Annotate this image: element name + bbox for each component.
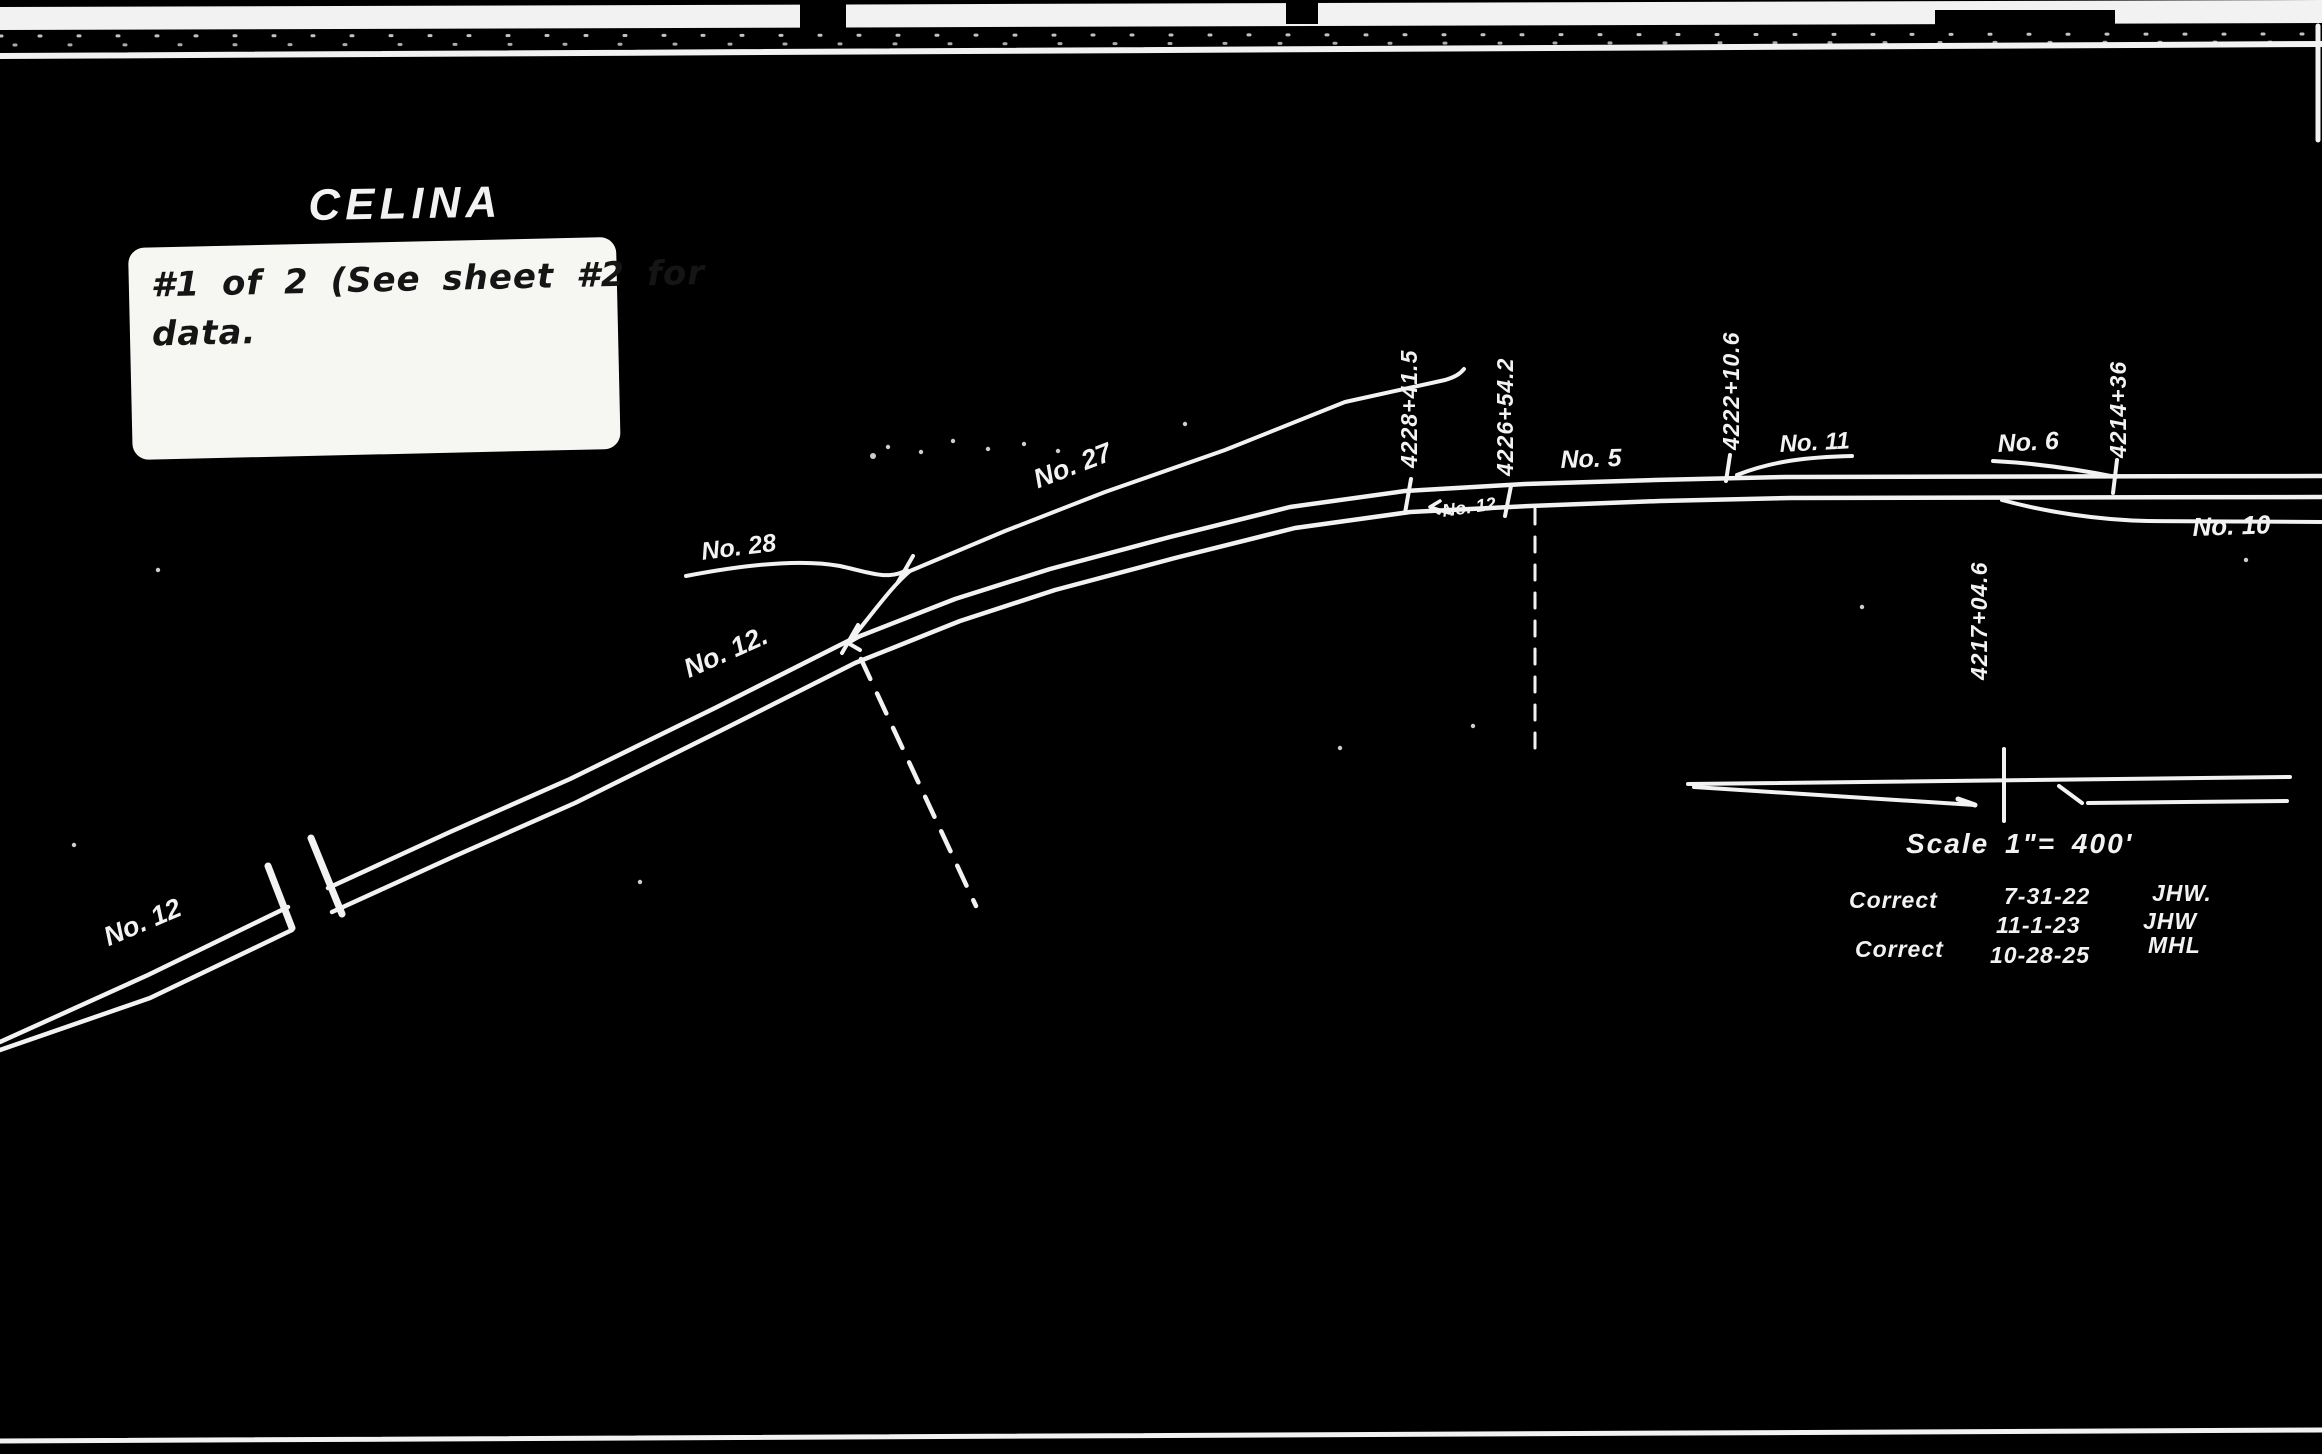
note-line-1: #1 of 2 (See sheet #2 for	[150, 251, 595, 310]
inset-top-line	[1688, 777, 2290, 784]
dashed-lines	[861, 509, 1535, 906]
correction-1-action: Correct	[1849, 889, 1938, 912]
speck	[1471, 724, 1475, 728]
label-track-no10: No. 10	[2192, 511, 2271, 540]
tick-4214	[2113, 460, 2117, 493]
correction-3-action: Correct	[1855, 938, 1944, 961]
track-no10-line	[2002, 500, 2322, 522]
inset-lower-line	[2088, 801, 2287, 803]
track-no27-line	[850, 369, 1464, 641]
top-noise-dots	[0, 34, 2322, 36]
tick-4226	[1505, 486, 1511, 516]
correction-2-date: 11-1-23	[1996, 914, 2081, 937]
track-no28-line	[686, 563, 907, 576]
speck	[1860, 605, 1864, 609]
speck	[1183, 422, 1187, 426]
label-track-no11: No. 11	[1779, 429, 1850, 457]
speck	[870, 453, 876, 459]
top-strip-blotch	[1286, 2, 1318, 24]
top-strip-blotch	[800, 4, 846, 28]
note-box: #1 of 2 (See sheet #2 for data.	[128, 237, 621, 460]
station-label-4222-10-6: 4222+10.6	[1720, 332, 1743, 450]
bridge-tick-right	[311, 838, 342, 914]
station-label-4217-04-6: 4217+04.6	[1968, 562, 1991, 680]
speck	[886, 445, 890, 449]
top-border-line	[0, 44, 2322, 56]
inset-diagonal-left	[1694, 787, 1975, 805]
speck	[919, 450, 923, 454]
scale-note: Scale 1"= 400'	[1906, 830, 2133, 858]
inset-diagonal-right	[2059, 786, 2082, 803]
speck	[1022, 442, 1026, 446]
tick-4228	[1405, 479, 1411, 513]
correction-3-date: 10-28-25	[1990, 944, 2090, 967]
top-border	[0, 0, 2322, 140]
speck	[951, 439, 955, 443]
scan-specks	[72, 422, 2248, 884]
speck	[986, 447, 990, 451]
speck	[156, 568, 160, 572]
note-line-2: data.	[151, 301, 596, 360]
correction-3-initials: MHL	[2148, 934, 2201, 957]
station-label-4228-41-5: 4228+41.5	[1398, 350, 1421, 468]
correction-2-initials: JHW	[2143, 910, 2197, 933]
correction-1-initials: JHW.	[2152, 882, 2212, 905]
bridge-ticks	[268, 838, 342, 928]
bottom-border-line	[0, 1430, 2322, 1441]
top-strip-blotch	[1935, 10, 2115, 26]
scanned-track-map-sheet: CELINA #1 of 2 (See sheet #2 for data. N…	[0, 0, 2322, 1454]
bridge-tick-left	[268, 866, 292, 928]
correction-1-date: 7-31-22	[2004, 885, 2090, 908]
scale-inset-diagram	[1688, 749, 2290, 821]
label-track-no5: No. 5	[1560, 446, 1622, 473]
station-label-4214-36: 4214+36	[2107, 361, 2130, 458]
speck	[638, 880, 642, 884]
speck	[1056, 449, 1060, 453]
track-no11-line	[1737, 456, 1852, 475]
main-track-lower-left	[0, 930, 292, 1050]
dashed-line-diagonal	[861, 659, 976, 906]
station-label-4226-54-2: 4226+54.2	[1494, 358, 1517, 476]
page-title: CELINA	[308, 181, 503, 228]
speck	[72, 843, 76, 847]
label-track-no6: No. 6	[1997, 429, 2059, 457]
speck	[1338, 746, 1342, 750]
main-track-upper-right	[328, 476, 2322, 888]
speck	[2244, 558, 2248, 562]
